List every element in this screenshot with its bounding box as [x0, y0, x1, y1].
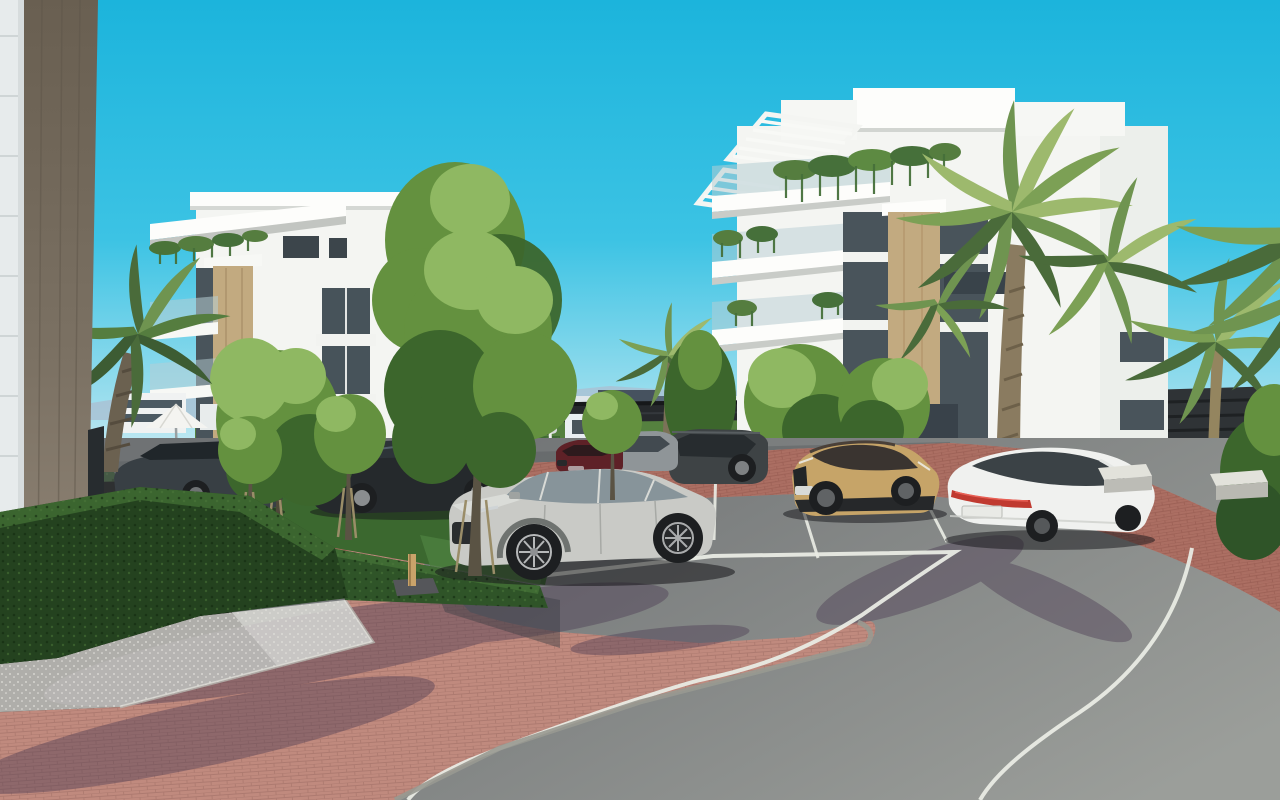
white-fastback-sedan	[945, 448, 1155, 550]
dark-suv	[668, 429, 768, 484]
scene-canvas	[0, 0, 1280, 800]
render-viewport	[0, 0, 1280, 800]
